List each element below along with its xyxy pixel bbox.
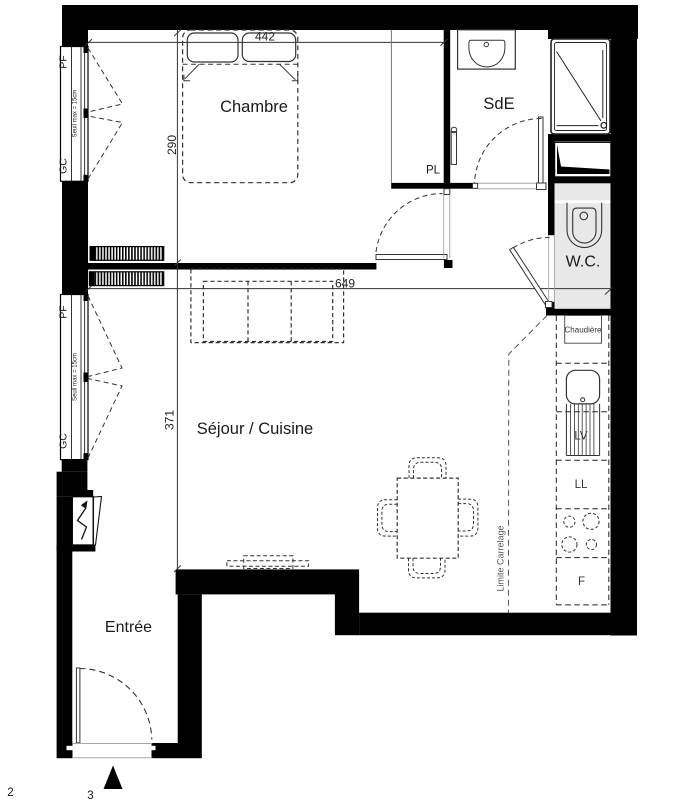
svg-text:Seuil max = 15cm: Seuil max = 15cm <box>73 353 79 401</box>
svg-text:290: 290 <box>165 135 179 155</box>
svg-text:GC: GC <box>58 158 70 174</box>
svg-text:LV: LV <box>574 431 588 443</box>
svg-text:W.C.: W.C. <box>566 254 601 271</box>
svg-text:Séjour / Cuisine: Séjour / Cuisine <box>197 420 313 438</box>
svg-text:2: 2 <box>7 787 13 799</box>
svg-text:Chaudière: Chaudière <box>565 326 602 335</box>
svg-text:LL: LL <box>575 479 588 491</box>
svg-text:SdE: SdE <box>483 95 514 113</box>
svg-text:Chambre: Chambre <box>220 98 288 116</box>
svg-text:371: 371 <box>163 410 177 430</box>
svg-text:Seuil max = 15cm: Seuil max = 15cm <box>73 90 79 138</box>
svg-text:GC: GC <box>58 433 70 449</box>
svg-text:F: F <box>578 576 585 588</box>
svg-text:3: 3 <box>87 790 93 800</box>
svg-text:Limite Carrelage: Limite Carrelage <box>496 525 506 591</box>
svg-text:PF: PF <box>58 55 70 68</box>
svg-text:Entrée: Entrée <box>105 619 152 636</box>
svg-text:PF: PF <box>58 305 70 318</box>
svg-text:649: 649 <box>335 277 355 291</box>
svg-text:442: 442 <box>255 29 275 43</box>
svg-text:PL: PL <box>426 165 441 177</box>
